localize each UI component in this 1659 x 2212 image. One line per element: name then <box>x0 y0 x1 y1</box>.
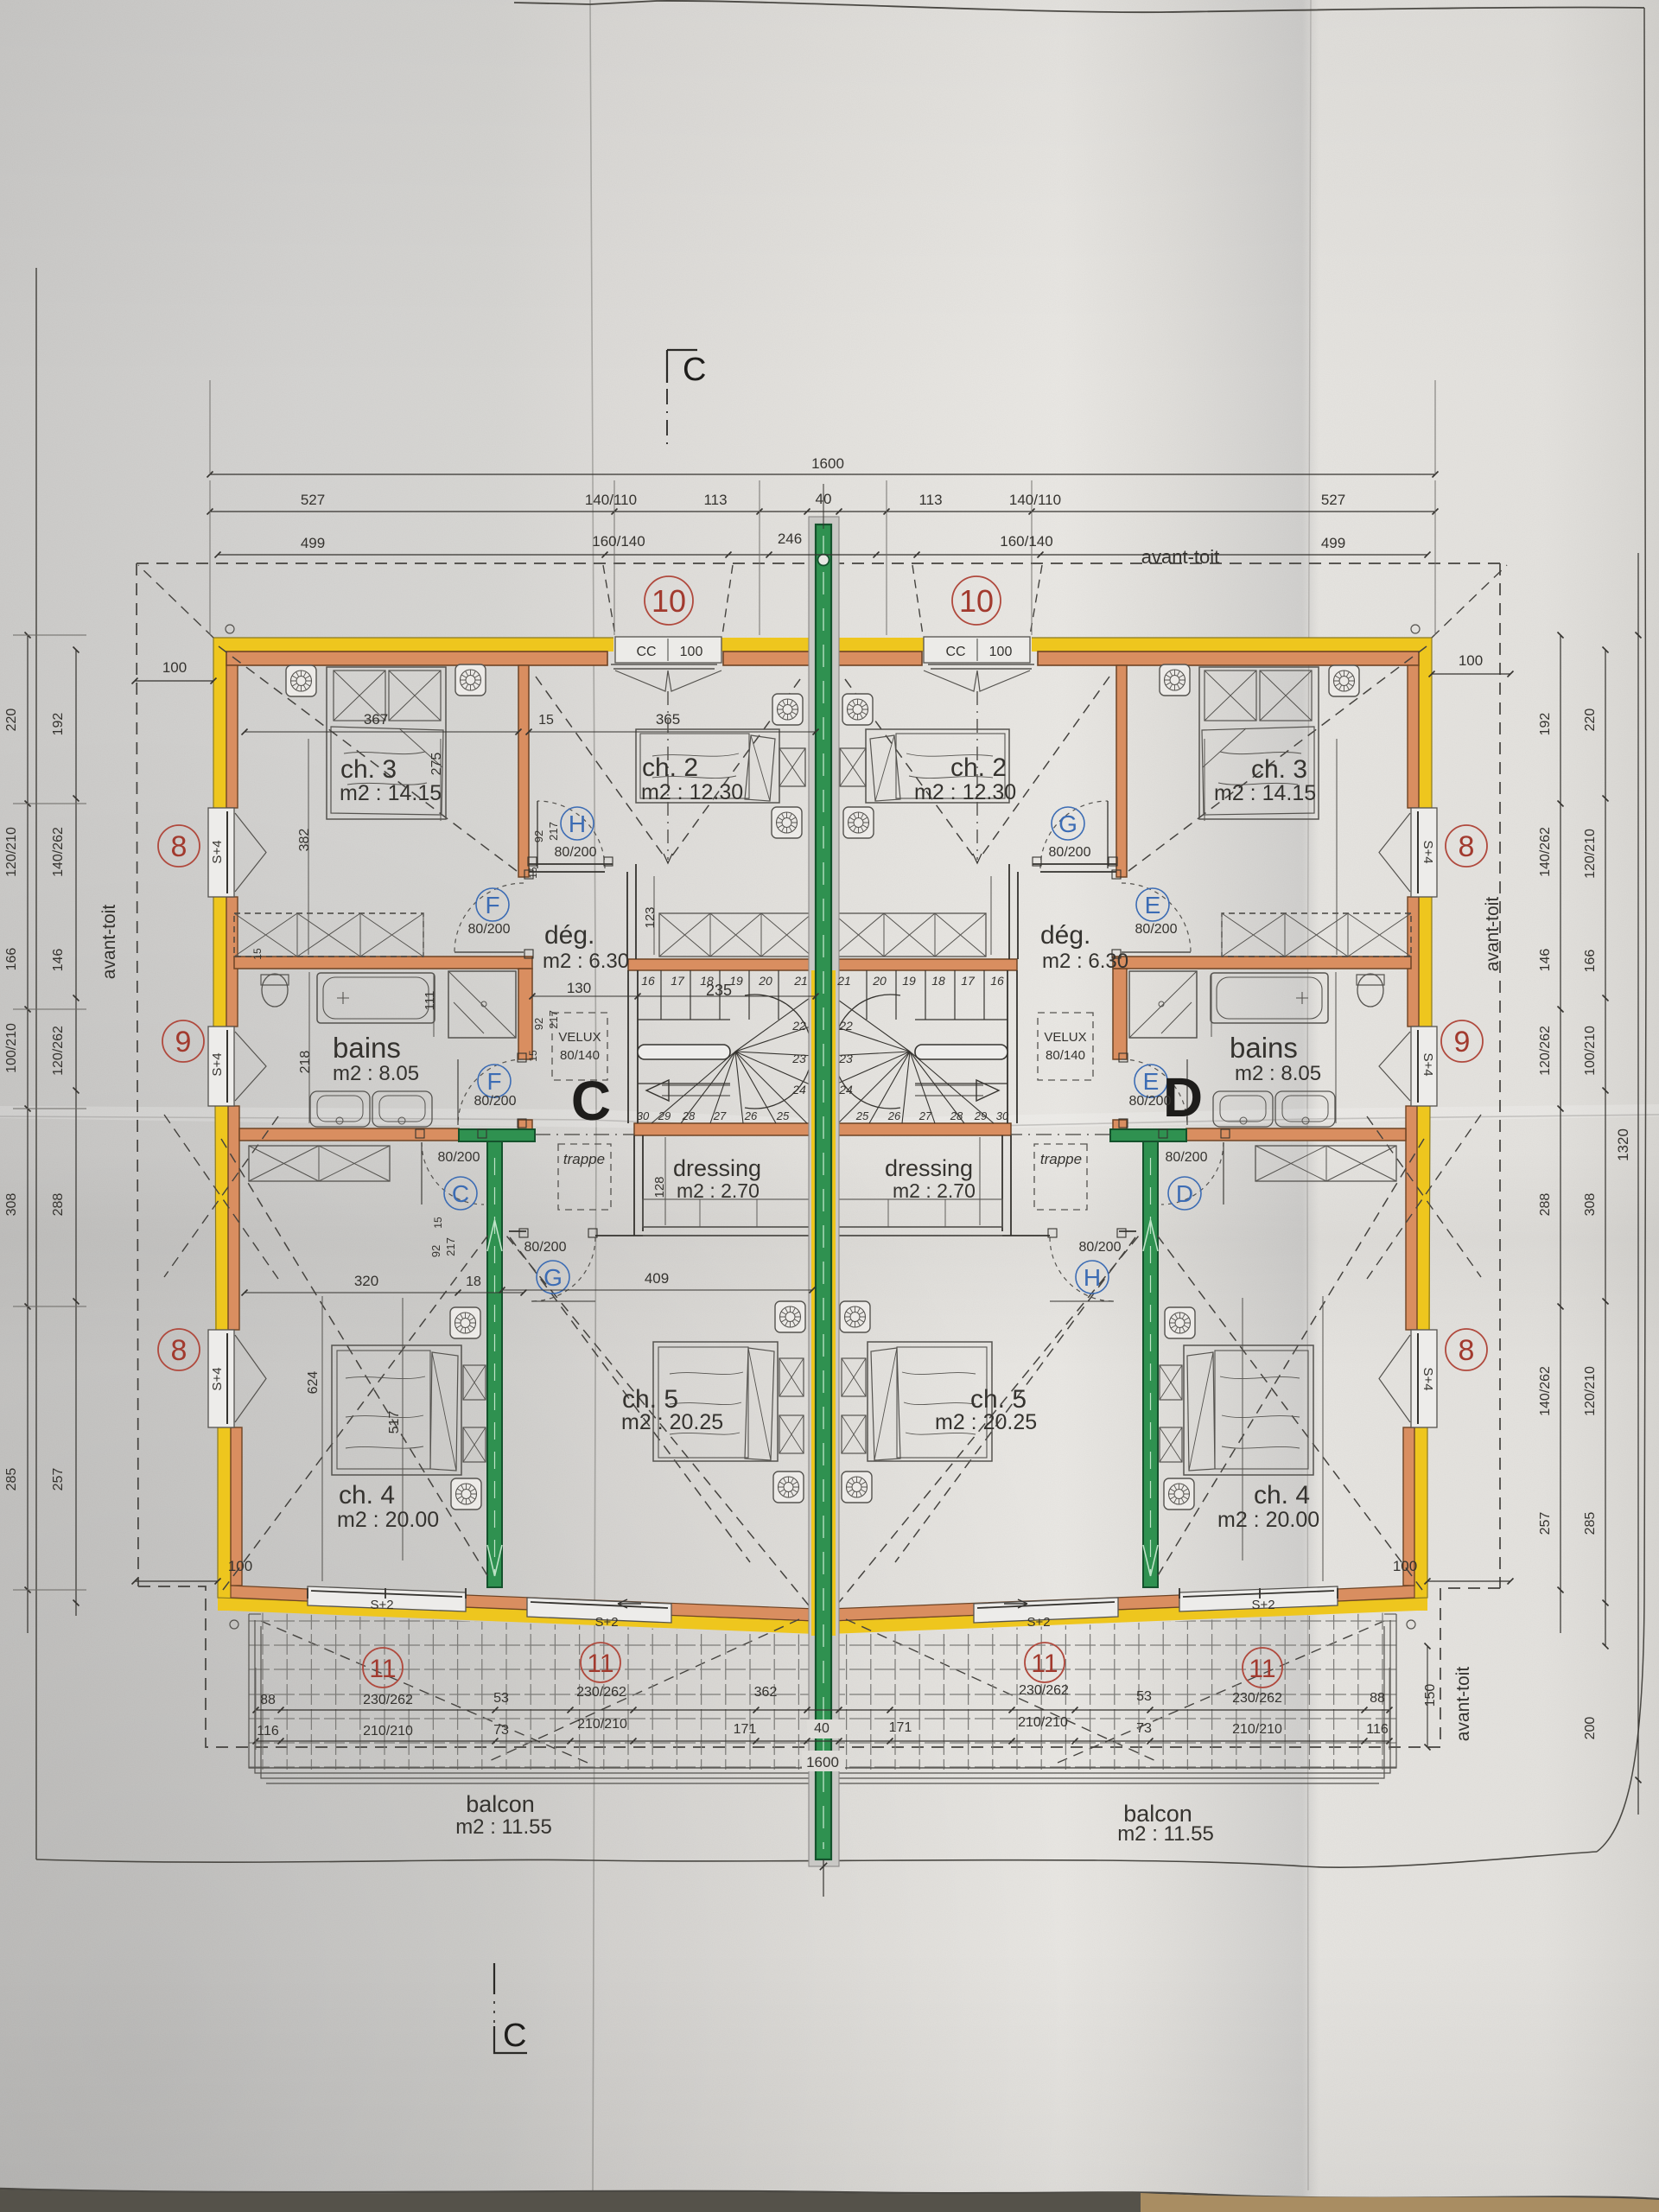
svg-text:192: 192 <box>51 713 66 736</box>
svg-text:230/262: 230/262 <box>1019 1683 1069 1698</box>
svg-text:16: 16 <box>641 974 655 988</box>
svg-text:F: F <box>486 1068 501 1095</box>
svg-text:308: 308 <box>1583 1193 1598 1217</box>
svg-text:11: 11 <box>587 1649 613 1678</box>
svg-text:24: 24 <box>838 1083 853 1096</box>
svg-text:26: 26 <box>744 1109 758 1122</box>
svg-text:m2 : 11.55: m2 : 11.55 <box>455 1815 552 1839</box>
svg-text:80/200: 80/200 <box>474 1094 517 1109</box>
svg-text:527: 527 <box>1321 492 1345 508</box>
svg-text:120/210: 120/210 <box>4 827 19 877</box>
svg-text:275: 275 <box>429 753 444 776</box>
svg-text:avant-toit: avant-toit <box>1453 1667 1473 1742</box>
svg-text:G: G <box>543 1264 563 1291</box>
svg-text:80/200: 80/200 <box>555 845 597 860</box>
svg-text:15: 15 <box>527 867 539 879</box>
svg-text:S+4: S+4 <box>210 840 225 863</box>
svg-text:ch. 2: ch. 2 <box>950 753 1007 782</box>
svg-text:23: 23 <box>791 1052 806 1065</box>
svg-text:230/262: 230/262 <box>576 1685 626 1700</box>
svg-text:92: 92 <box>532 830 545 842</box>
svg-text:avant-toit: avant-toit <box>99 905 119 980</box>
svg-text:D: D <box>1176 1180 1193 1207</box>
svg-text:140/262: 140/262 <box>51 827 66 877</box>
svg-text:1600: 1600 <box>806 1754 839 1770</box>
svg-text:18: 18 <box>931 974 945 988</box>
svg-text:80/140: 80/140 <box>560 1048 600 1063</box>
svg-text:80/200: 80/200 <box>1135 922 1178 937</box>
svg-text:CC: CC <box>636 645 656 659</box>
svg-text:S+4: S+4 <box>1421 840 1435 863</box>
svg-text:S+2: S+2 <box>1027 1615 1050 1630</box>
svg-text:217: 217 <box>547 822 560 841</box>
svg-text:100: 100 <box>989 645 1013 659</box>
svg-text:S+4: S+4 <box>1421 1052 1435 1076</box>
svg-text:11: 11 <box>1031 1649 1058 1678</box>
svg-text:m2 : 14.15: m2 : 14.15 <box>340 781 442 805</box>
svg-text:17: 17 <box>961 974 976 988</box>
svg-text:140/262: 140/262 <box>1538 1366 1553 1416</box>
svg-text:22: 22 <box>791 1019 806 1033</box>
svg-text:F: F <box>485 892 499 918</box>
svg-text:140/110: 140/110 <box>585 492 637 508</box>
svg-text:27: 27 <box>918 1109 932 1122</box>
svg-text:E: E <box>1145 892 1161 918</box>
svg-text:80/200: 80/200 <box>1166 1150 1208 1165</box>
svg-text:146: 146 <box>51 949 66 972</box>
svg-text:120/210: 120/210 <box>1583 829 1598 879</box>
svg-text:G: G <box>1058 810 1077 837</box>
svg-text:80/200: 80/200 <box>468 922 511 937</box>
svg-text:1320: 1320 <box>1615 1128 1631 1161</box>
svg-text:116: 116 <box>1366 1722 1389 1737</box>
svg-text:320: 320 <box>354 1273 378 1289</box>
svg-text:527: 527 <box>301 492 325 508</box>
svg-text:S+4: S+4 <box>210 1052 225 1076</box>
svg-text:285: 285 <box>4 1468 19 1491</box>
svg-text:88: 88 <box>1370 1691 1385 1706</box>
svg-text:H: H <box>569 810 586 837</box>
svg-text:130: 130 <box>567 980 591 996</box>
svg-text:m2 : 12.30: m2 : 12.30 <box>914 780 1016 804</box>
svg-text:217: 217 <box>444 1237 457 1256</box>
svg-text:25: 25 <box>776 1109 790 1122</box>
svg-text:ch. 4: ch. 4 <box>1254 1481 1310 1510</box>
svg-text:365: 365 <box>656 711 680 728</box>
svg-text:m2 : 20.00: m2 : 20.00 <box>1217 1508 1319 1532</box>
svg-text:23: 23 <box>838 1052 853 1065</box>
svg-text:499: 499 <box>1321 535 1345 551</box>
svg-text:257: 257 <box>1538 1512 1553 1535</box>
svg-text:S+2: S+2 <box>370 1598 393 1612</box>
svg-text:CC: CC <box>945 645 965 659</box>
svg-text:m2 : 20.25: m2 : 20.25 <box>621 1410 723 1434</box>
svg-text:160/140: 160/140 <box>1000 533 1052 550</box>
svg-text:517: 517 <box>387 1411 402 1434</box>
svg-text:171: 171 <box>734 1722 757 1737</box>
svg-text:367: 367 <box>364 711 388 728</box>
svg-text:15: 15 <box>538 713 554 728</box>
svg-text:m2 : 6.30: m2 : 6.30 <box>543 950 629 973</box>
svg-text:257: 257 <box>51 1468 66 1491</box>
svg-text:dressing: dressing <box>885 1155 973 1181</box>
svg-text:m2 : 12.30: m2 : 12.30 <box>641 780 743 804</box>
svg-text:20: 20 <box>872 974 887 988</box>
svg-text:bains: bains <box>333 1032 401 1064</box>
svg-text:ch. 2: ch. 2 <box>642 753 698 782</box>
svg-text:120/210: 120/210 <box>1583 1366 1598 1416</box>
svg-text:160/140: 160/140 <box>592 533 645 550</box>
svg-text:20: 20 <box>758 974 772 988</box>
svg-text:9: 9 <box>1454 1026 1471 1058</box>
svg-text:362: 362 <box>754 1685 778 1700</box>
svg-text:53: 53 <box>493 1691 509 1706</box>
svg-text:11: 11 <box>1249 1655 1275 1683</box>
svg-text:120/262: 120/262 <box>51 1026 66 1076</box>
svg-text:trappe: trappe <box>563 1151 605 1167</box>
svg-text:150: 150 <box>1423 1684 1438 1707</box>
svg-text:16: 16 <box>990 974 1004 988</box>
svg-text:27: 27 <box>713 1109 727 1122</box>
svg-text:220: 220 <box>4 709 19 732</box>
svg-text:24: 24 <box>791 1083 806 1096</box>
svg-text:dég.: dég. <box>544 921 594 950</box>
svg-text:m2 : 14.15: m2 : 14.15 <box>1214 781 1316 805</box>
svg-text:40: 40 <box>814 1721 829 1736</box>
svg-text:200: 200 <box>1583 1717 1598 1740</box>
svg-text:128: 128 <box>652 1176 667 1198</box>
svg-text:m2 : 2.70: m2 : 2.70 <box>677 1179 760 1202</box>
svg-text:100: 100 <box>680 645 703 659</box>
svg-text:9: 9 <box>175 1026 192 1058</box>
svg-text:H: H <box>1084 1264 1101 1291</box>
svg-text:21: 21 <box>836 974 851 988</box>
svg-text:140/110: 140/110 <box>1009 492 1061 508</box>
svg-text:ch. 4: ch. 4 <box>339 1481 395 1510</box>
svg-text:92: 92 <box>532 1018 545 1030</box>
svg-text:S+2: S+2 <box>1251 1598 1274 1612</box>
svg-text:230/262: 230/262 <box>363 1693 413 1707</box>
svg-text:120/262: 120/262 <box>1538 1026 1553 1076</box>
svg-text:VELUX: VELUX <box>1044 1030 1086 1045</box>
svg-text:m2 : 20.25: m2 : 20.25 <box>935 1410 1037 1434</box>
svg-text:25: 25 <box>855 1109 869 1122</box>
svg-text:92: 92 <box>429 1245 442 1257</box>
svg-text:285: 285 <box>1583 1512 1598 1535</box>
svg-text:140/262: 140/262 <box>1538 827 1553 877</box>
svg-text:8: 8 <box>1459 1334 1475 1367</box>
svg-text:dressing: dressing <box>673 1155 761 1181</box>
svg-text:m2 : 20.00: m2 : 20.00 <box>337 1508 439 1532</box>
svg-text:146: 146 <box>1538 949 1553 972</box>
svg-text:C: C <box>503 2018 526 2054</box>
svg-text:100/210: 100/210 <box>1583 1026 1598 1076</box>
svg-text:210/210: 210/210 <box>1018 1715 1068 1730</box>
svg-text:8: 8 <box>171 830 188 863</box>
svg-text:382: 382 <box>297 829 312 852</box>
svg-text:19: 19 <box>902 974 916 988</box>
svg-text:53: 53 <box>1136 1689 1152 1704</box>
svg-text:100: 100 <box>1459 652 1483 669</box>
svg-text:246: 246 <box>778 531 802 547</box>
svg-text:18: 18 <box>700 974 714 988</box>
svg-text:15: 15 <box>432 1217 444 1229</box>
svg-text:m2 : 6.30: m2 : 6.30 <box>1042 950 1128 973</box>
svg-text:73: 73 <box>493 1723 509 1738</box>
svg-text:29: 29 <box>658 1109 671 1122</box>
svg-text:111: 111 <box>423 991 437 1011</box>
svg-text:C: C <box>452 1180 469 1207</box>
svg-text:C: C <box>683 352 706 388</box>
svg-text:ch. 3: ch. 3 <box>340 755 397 784</box>
svg-text:8: 8 <box>171 1334 188 1367</box>
svg-text:dég.: dég. <box>1040 921 1090 950</box>
svg-text:113: 113 <box>703 492 727 508</box>
svg-text:VELUX: VELUX <box>558 1030 601 1045</box>
svg-text:10: 10 <box>652 583 686 619</box>
svg-text:29: 29 <box>974 1109 987 1122</box>
svg-text:11: 11 <box>369 1655 396 1683</box>
svg-text:100: 100 <box>228 1558 252 1574</box>
svg-text:1600: 1600 <box>811 455 844 472</box>
svg-text:avant-toit: avant-toit <box>1141 546 1220 568</box>
svg-text:S+2: S+2 <box>594 1615 618 1630</box>
svg-text:73: 73 <box>1136 1721 1152 1736</box>
svg-text:210/210: 210/210 <box>363 1724 413 1738</box>
svg-text:21: 21 <box>793 974 808 988</box>
svg-text:E: E <box>1143 1068 1160 1095</box>
svg-text:30: 30 <box>996 1109 1009 1122</box>
svg-text:288: 288 <box>1538 1193 1553 1217</box>
svg-text:28: 28 <box>682 1109 696 1122</box>
svg-text:288: 288 <box>51 1193 66 1217</box>
svg-text:15: 15 <box>251 948 264 960</box>
svg-text:220: 220 <box>1583 709 1598 732</box>
svg-text:trappe: trappe <box>1040 1151 1082 1167</box>
svg-text:218: 218 <box>298 1051 313 1074</box>
svg-text:m2 : 11.55: m2 : 11.55 <box>1117 1822 1214 1846</box>
svg-text:217: 217 <box>547 1010 560 1029</box>
svg-text:10: 10 <box>959 583 994 619</box>
svg-text:28: 28 <box>950 1109 963 1122</box>
svg-text:80/200: 80/200 <box>1049 845 1091 860</box>
svg-text:m2 : 8.05: m2 : 8.05 <box>333 1062 419 1085</box>
svg-text:80/140: 80/140 <box>1046 1048 1085 1063</box>
svg-text:S+4: S+4 <box>210 1367 225 1390</box>
svg-text:100: 100 <box>1393 1558 1417 1574</box>
svg-text:15: 15 <box>527 1050 539 1062</box>
svg-text:166: 166 <box>4 948 19 971</box>
svg-text:624: 624 <box>306 1371 321 1395</box>
svg-text:26: 26 <box>887 1109 901 1122</box>
svg-text:123: 123 <box>643 906 658 928</box>
svg-text:499: 499 <box>301 535 325 551</box>
svg-text:100/210: 100/210 <box>4 1023 19 1073</box>
svg-text:100: 100 <box>162 659 187 676</box>
svg-text:409: 409 <box>645 1270 669 1287</box>
svg-text:ch. 3: ch. 3 <box>1251 755 1307 784</box>
svg-text:18: 18 <box>466 1274 481 1289</box>
svg-text:40: 40 <box>816 491 832 507</box>
svg-text:C: C <box>571 1070 611 1132</box>
svg-text:88: 88 <box>260 1693 276 1707</box>
svg-text:192: 192 <box>1538 713 1553 736</box>
svg-text:m2 : 2.70: m2 : 2.70 <box>893 1179 976 1202</box>
svg-text:m2 : 8.05: m2 : 8.05 <box>1235 1062 1321 1085</box>
svg-text:80/200: 80/200 <box>1079 1240 1122 1255</box>
svg-text:210/210: 210/210 <box>577 1717 627 1732</box>
svg-text:S+4: S+4 <box>1421 1367 1435 1390</box>
svg-text:116: 116 <box>257 1724 279 1738</box>
svg-text:balcon: balcon <box>466 1791 535 1817</box>
svg-text:113: 113 <box>918 492 942 508</box>
svg-text:22: 22 <box>838 1019 853 1033</box>
svg-text:19: 19 <box>729 974 743 988</box>
svg-text:308: 308 <box>4 1193 19 1217</box>
svg-text:17: 17 <box>671 974 685 988</box>
svg-text:171: 171 <box>889 1720 912 1735</box>
svg-text:80/200: 80/200 <box>1129 1094 1172 1109</box>
svg-text:avant-toit: avant-toit <box>1483 897 1503 972</box>
svg-text:30: 30 <box>637 1109 650 1122</box>
svg-text:80/200: 80/200 <box>438 1150 480 1165</box>
svg-text:bains: bains <box>1230 1032 1298 1064</box>
svg-text:210/210: 210/210 <box>1232 1722 1282 1737</box>
svg-text:230/262: 230/262 <box>1232 1691 1282 1706</box>
svg-text:80/200: 80/200 <box>524 1240 567 1255</box>
svg-text:8: 8 <box>1459 830 1475 863</box>
svg-text:166: 166 <box>1583 950 1598 973</box>
